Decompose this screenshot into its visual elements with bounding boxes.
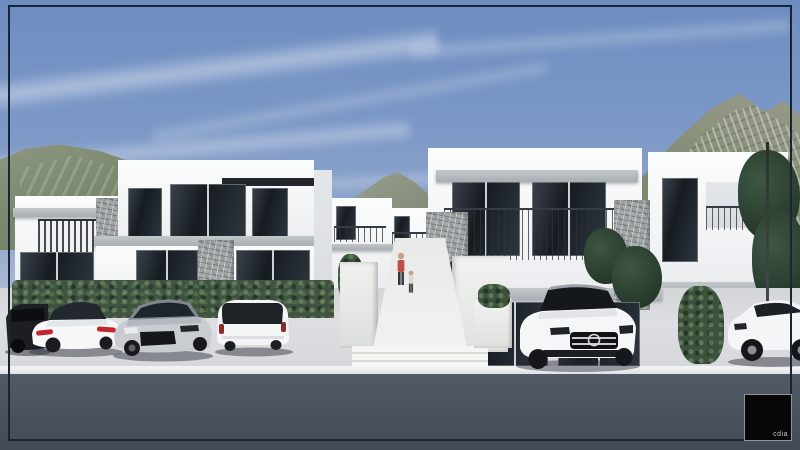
bush bbox=[678, 286, 724, 364]
car-silver-hatchback bbox=[110, 292, 216, 364]
architectural-render-scene: cdia bbox=[0, 0, 800, 450]
studio-logo-badge: cdia bbox=[744, 394, 792, 441]
car-white-mini-hatchback bbox=[212, 294, 296, 358]
asphalt-road bbox=[0, 374, 800, 450]
left-villa-upper-window-wide bbox=[170, 184, 246, 244]
walkway-low-wall-left bbox=[340, 262, 378, 348]
right-villa-canopy-slab bbox=[436, 170, 638, 182]
background-villa-railing bbox=[334, 226, 386, 242]
window-mullion bbox=[207, 184, 209, 244]
car-white-luxury-suv bbox=[512, 282, 644, 374]
cloud-streak bbox=[410, 15, 791, 63]
far-right-villa-window bbox=[662, 178, 698, 262]
studio-logo-text: cdia bbox=[770, 429, 791, 440]
car-white-sports-suv bbox=[724, 290, 800, 370]
planter-plants bbox=[478, 284, 510, 308]
curb-line bbox=[0, 366, 800, 374]
person-child bbox=[406, 270, 416, 294]
street-pole bbox=[766, 142, 769, 302]
